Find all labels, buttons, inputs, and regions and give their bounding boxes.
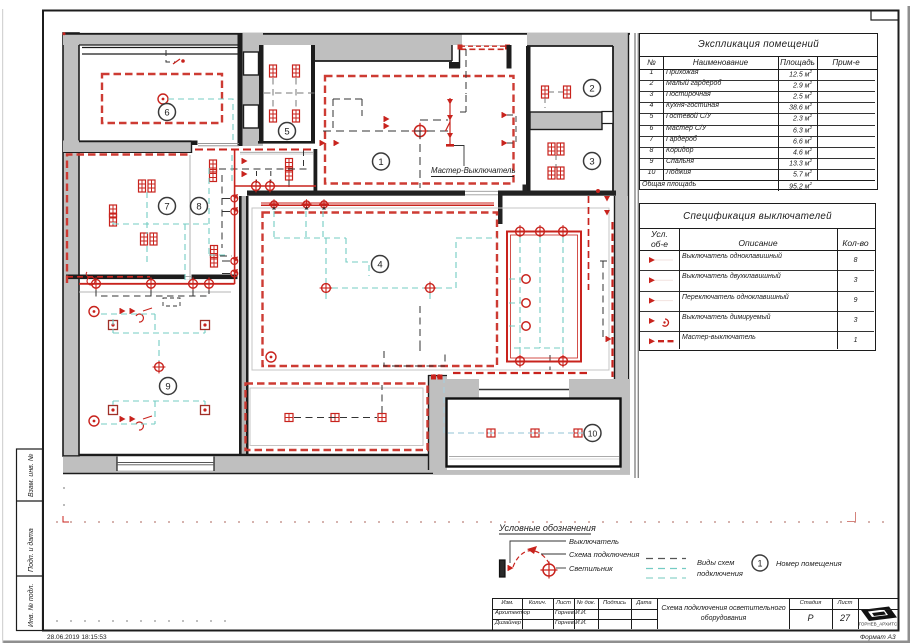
- svg-text:Светильник: Светильник: [569, 564, 613, 573]
- svg-text:Инв. № подл.: Инв. № подл.: [27, 584, 35, 627]
- svg-text:Условные обозначения: Условные обозначения: [498, 523, 596, 533]
- svg-text:Формат А3: Формат А3: [860, 634, 896, 641]
- svg-text:Взам. инв. №: Взам. инв. №: [28, 453, 35, 497]
- svg-text:Мастер-Выключатель: Мастер-Выключатель: [431, 166, 516, 175]
- svg-text:1: 1: [378, 157, 383, 168]
- svg-text:9: 9: [165, 382, 170, 393]
- svg-text:7: 7: [164, 202, 169, 213]
- svg-text:6: 6: [164, 108, 169, 119]
- svg-text:Виды схем: Виды схем: [697, 558, 734, 567]
- svg-text:Схема подключения: Схема подключения: [569, 550, 639, 559]
- svg-text:10: 10: [588, 429, 598, 439]
- svg-text:подключения: подключения: [697, 569, 743, 578]
- svg-text:5: 5: [284, 127, 289, 138]
- svg-text:4: 4: [377, 260, 382, 271]
- svg-text:1: 1: [757, 559, 762, 569]
- svg-text:2: 2: [589, 84, 594, 95]
- svg-text:3: 3: [589, 157, 594, 168]
- svg-text:8: 8: [196, 202, 201, 213]
- svg-text:Номер помещения: Номер помещения: [776, 559, 842, 568]
- svg-text:Подп. и дата: Подп. и дата: [27, 528, 35, 572]
- svg-text:Выключатель: Выключатель: [569, 537, 619, 546]
- svg-text:28.06.2019 18:15:53: 28.06.2019 18:15:53: [47, 634, 107, 641]
